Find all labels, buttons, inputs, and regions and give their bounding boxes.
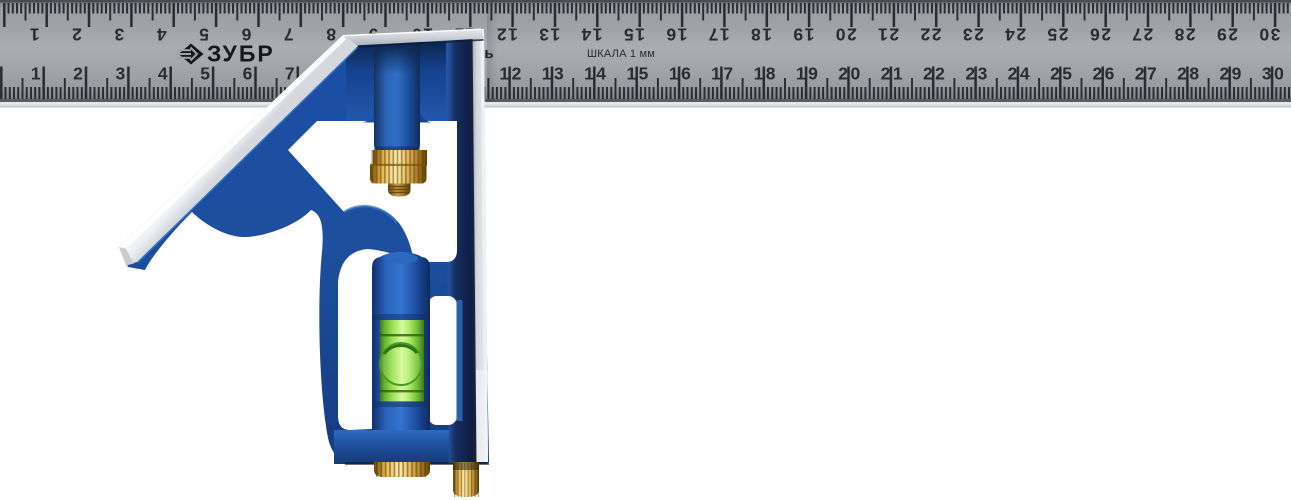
svg-text:4: 4 [157,25,167,45]
svg-text:12: 12 [499,64,523,84]
svg-text:22: 22 [923,64,947,84]
svg-text:21: 21 [881,64,905,84]
svg-text:16: 16 [665,25,687,45]
svg-text:21: 21 [877,25,899,45]
svg-text:22: 22 [919,25,941,45]
svg-text:24: 24 [1004,25,1026,45]
svg-text:ШКАЛА 1 мм: ШКАЛА 1 мм [587,48,655,60]
svg-text:1: 1 [31,64,41,84]
svg-text:27: 27 [1131,25,1153,45]
svg-text:25: 25 [1046,25,1068,45]
svg-text:20: 20 [838,64,862,84]
svg-text:4: 4 [158,64,168,84]
svg-text:2: 2 [72,25,82,45]
svg-text:29: 29 [1219,64,1243,84]
svg-text:14: 14 [580,25,602,45]
svg-text:23: 23 [961,25,983,45]
svg-text:13: 13 [538,25,560,45]
svg-text:25: 25 [1050,64,1074,84]
svg-text:26: 26 [1092,64,1116,84]
svg-text:7: 7 [284,25,294,45]
svg-text:19: 19 [792,25,814,45]
svg-text:17: 17 [711,64,735,84]
svg-text:19: 19 [796,64,820,84]
svg-text:28: 28 [1177,64,1201,84]
svg-text:ЗУБР: ЗУБР [207,41,275,67]
svg-text:5: 5 [200,64,210,84]
svg-text:18: 18 [750,25,772,45]
svg-text:27: 27 [1135,64,1159,84]
svg-text:26: 26 [1088,25,1110,45]
svg-text:23: 23 [965,64,989,84]
svg-text:15: 15 [622,25,644,45]
svg-text:30: 30 [1258,25,1280,45]
svg-text:1: 1 [30,25,40,45]
svg-text:28: 28 [1173,25,1195,45]
svg-text:2: 2 [73,64,83,84]
svg-text:16: 16 [669,64,693,84]
svg-text:8: 8 [326,25,336,45]
svg-text:12: 12 [495,25,517,45]
svg-text:3: 3 [116,64,126,84]
svg-text:7: 7 [285,64,295,84]
svg-text:13: 13 [542,64,566,84]
svg-text:3: 3 [114,25,124,45]
svg-text:18: 18 [754,64,778,84]
svg-text:17: 17 [707,25,729,45]
svg-text:6: 6 [243,64,253,84]
svg-text:15: 15 [626,64,650,84]
svg-text:14: 14 [584,64,608,84]
svg-text:20: 20 [834,25,856,45]
svg-text:29: 29 [1215,25,1237,45]
svg-text:30: 30 [1262,64,1286,84]
svg-text:24: 24 [1008,64,1032,84]
